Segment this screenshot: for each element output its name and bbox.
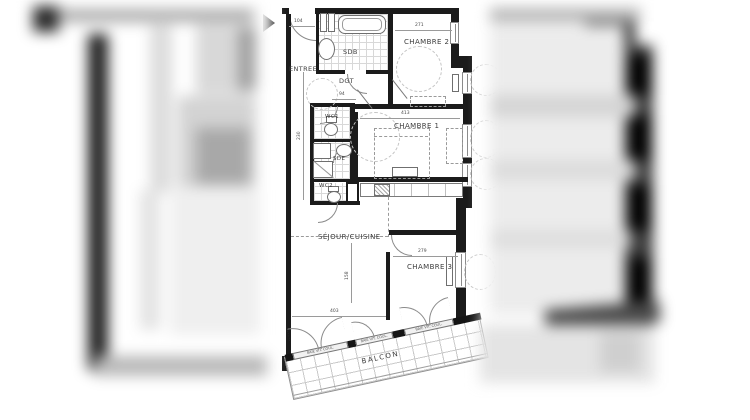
blurred-plan-right [0, 0, 750, 420]
floorplan-image: 104 271 94 230 413 158 279 403 ENTREE SD… [0, 0, 750, 420]
